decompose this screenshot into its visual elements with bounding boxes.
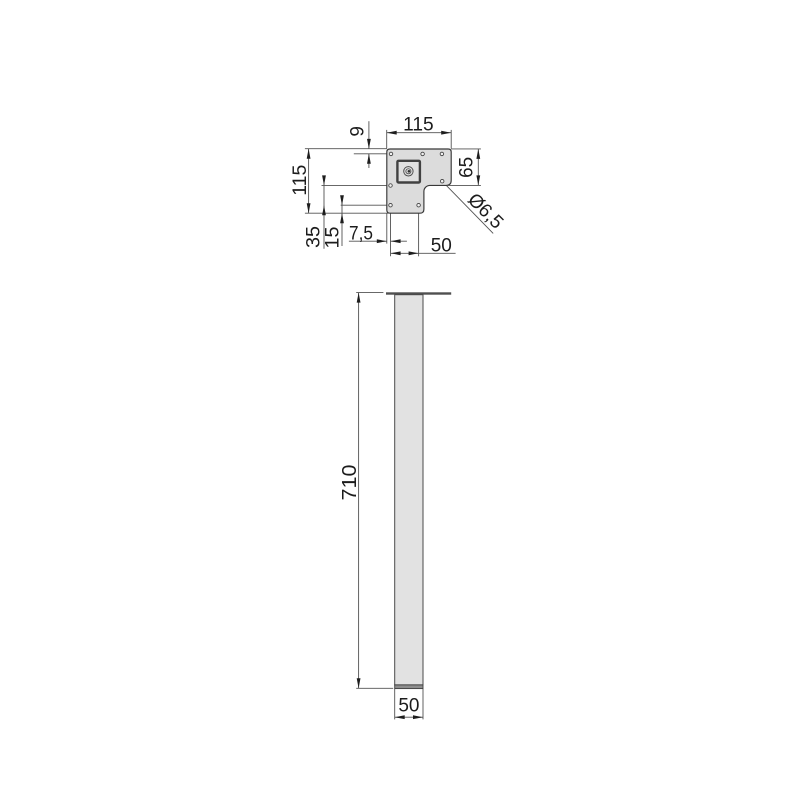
svg-text:65: 65 — [457, 157, 478, 178]
svg-text:710: 710 — [338, 465, 361, 501]
svg-text:35: 35 — [303, 226, 324, 248]
svg-text:50: 50 — [398, 696, 419, 717]
svg-text:7,5: 7,5 — [349, 223, 373, 244]
svg-text:50: 50 — [431, 235, 452, 256]
svg-text:115: 115 — [403, 115, 434, 136]
svg-text:9: 9 — [347, 126, 368, 137]
svg-text:15: 15 — [323, 227, 344, 249]
svg-text:115: 115 — [290, 165, 311, 196]
